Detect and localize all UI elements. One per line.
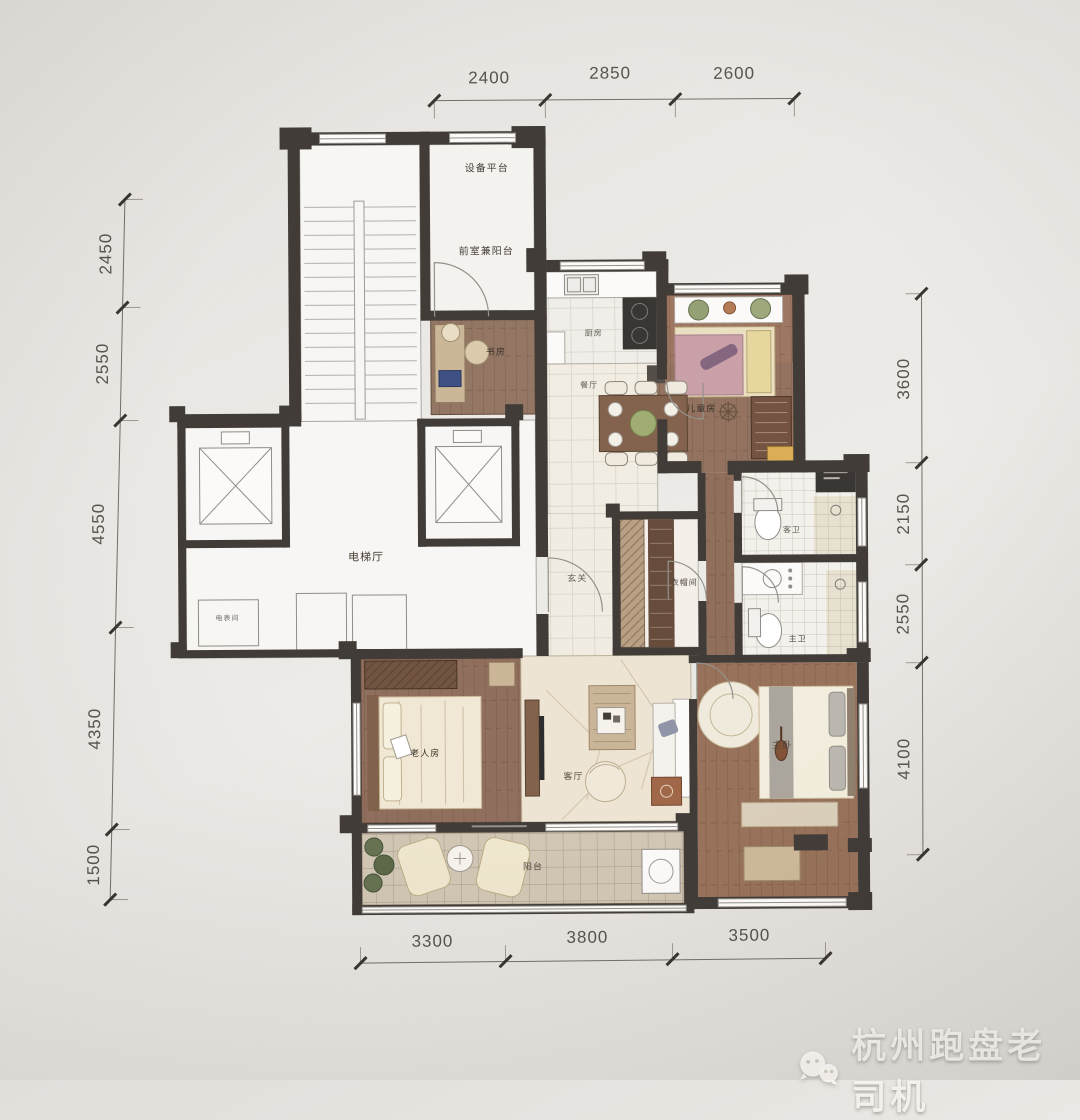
- dining-set: [599, 381, 688, 466]
- master-headboard: [847, 688, 856, 796]
- elder-nightstand: [489, 662, 515, 686]
- dim-right-4100: 4100: [894, 738, 914, 780]
- label-kitchen: 厨房: [585, 330, 603, 338]
- plant-icon: [364, 874, 382, 892]
- floorplan-svg: [0, 0, 1080, 1083]
- dim-bottom-3300: 3300: [411, 932, 453, 952]
- label-dining: 餐厅: [580, 382, 598, 390]
- dim-left-2450: 2450: [96, 233, 116, 275]
- bay-mat: [744, 846, 800, 880]
- centerpiece: [630, 410, 656, 436]
- dim-right-2150: 2150: [894, 493, 914, 535]
- label-meter-room: 电表间: [215, 615, 239, 622]
- dim-right-3600: 3600: [894, 358, 914, 400]
- armchair: [585, 761, 625, 801]
- dining-chair: [605, 381, 627, 394]
- label-cloakroom: 衣帽间: [671, 579, 698, 587]
- bedroom-cabinet: [794, 834, 828, 850]
- plant-icon: [374, 855, 394, 875]
- pillow: [383, 757, 401, 801]
- dim-top-2400: 2400: [468, 68, 510, 88]
- label-kids-room: 儿童房: [686, 404, 716, 413]
- bedroom-rug: [742, 802, 838, 827]
- desk-lamp-icon: [442, 323, 460, 341]
- dim-top-2600: 2600: [713, 64, 755, 84]
- pillow: [829, 746, 845, 790]
- plant-icon: [365, 838, 383, 856]
- label-balcony: 阳台: [523, 862, 543, 871]
- watermark: 杭州跑盘老司机: [796, 1018, 1080, 1120]
- dim-left-1500: 1500: [84, 844, 104, 886]
- dining-chair: [635, 452, 657, 465]
- dim-bottom-3500: 3500: [728, 926, 770, 946]
- side-table: [651, 777, 681, 805]
- dim-top-2850: 2850: [589, 63, 631, 83]
- elder-headboard: [367, 695, 380, 811]
- dim-left-4350: 4350: [85, 708, 105, 750]
- label-master-bedroom: 主卧: [772, 741, 792, 750]
- floorplan-drawing: 设备平台 前室兼阳台 电梯厅 电表间 书房 厨房 餐厅 儿童房 玄关 衣帽间 客…: [0, 0, 1080, 1083]
- watermark-text: 杭州跑盘老司机: [851, 1018, 1080, 1120]
- washing-machine: [642, 849, 680, 893]
- label-master-bath: 主卫: [789, 635, 807, 643]
- plant-icon: [751, 299, 771, 319]
- plant-icon: [689, 300, 709, 320]
- tv-console: [525, 700, 540, 796]
- laptop-icon: [439, 370, 461, 386]
- wechat-icon: [796, 1046, 841, 1092]
- kitchen-cabinet: [547, 332, 565, 364]
- kitchen-counter: [546, 271, 656, 298]
- stair-divider: [354, 201, 365, 419]
- tv-icon: [539, 716, 544, 780]
- flower-icon: [724, 302, 736, 314]
- dim-bottom-3800: 3800: [566, 928, 608, 948]
- label-study: 书房: [486, 348, 506, 357]
- dining-chair: [635, 381, 657, 394]
- coffee-table: [597, 707, 625, 733]
- label-elder-room: 老人房: [410, 749, 440, 758]
- stove: [623, 297, 657, 349]
- floorplan-photo: 设备平台 前室兼阳台 电梯厅 电表间 书房 厨房 餐厅 儿童房 玄关 衣帽间 客…: [0, 0, 1080, 1080]
- dim-right-2550: 2550: [893, 593, 913, 635]
- label-equipment-platform: 设备平台: [465, 164, 509, 174]
- papasan-chair: [698, 682, 764, 748]
- dining-chair: [605, 452, 627, 465]
- label-living-room: 客厅: [563, 772, 583, 781]
- kids-pillow: [747, 331, 771, 393]
- label-guest-bath: 客卫: [783, 526, 801, 534]
- dim-left-2550: 2550: [93, 343, 113, 385]
- dim-left-4550: 4550: [89, 503, 109, 545]
- label-elevator-hall: 电梯厅: [348, 552, 384, 563]
- label-foyer: 玄关: [567, 574, 587, 583]
- pillow: [829, 692, 845, 736]
- label-front-room-balcony: 前室兼阳台: [459, 247, 514, 257]
